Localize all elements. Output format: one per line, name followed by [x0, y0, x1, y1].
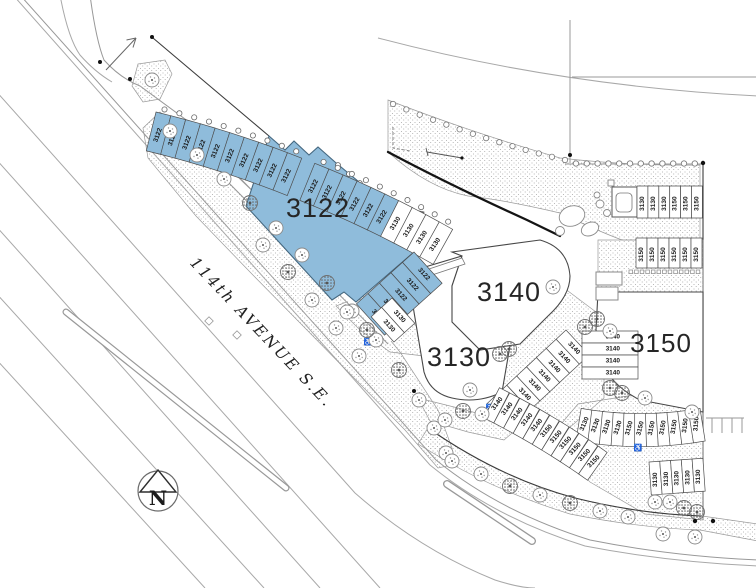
driveway-apron	[233, 331, 241, 339]
stall-label: 3130	[650, 196, 657, 211]
tree-dense-icon	[615, 386, 630, 401]
site-plan: 3122312231223122312231223122312231223122…	[0, 0, 756, 588]
tree-dense-icon	[690, 505, 705, 520]
shrub-icon	[177, 111, 182, 116]
stall-label: 3130	[695, 469, 702, 484]
tree-dense-icon	[243, 196, 258, 211]
shrub-icon	[265, 138, 270, 143]
tree-icon	[190, 148, 204, 162]
tree-dense-icon	[503, 479, 518, 494]
stall-label: 3150	[683, 196, 690, 211]
tree-icon	[533, 488, 547, 502]
north-label: N	[149, 486, 167, 510]
north-arrow-icon: N	[138, 470, 178, 511]
shrub-icon	[279, 143, 284, 148]
hedge-icon	[635, 270, 639, 274]
tree-icon	[474, 467, 488, 481]
hedge-icon	[685, 270, 689, 274]
stall-label: 3150	[660, 247, 667, 262]
junction-line	[60, 0, 112, 82]
tree-icon	[256, 238, 270, 252]
shrub-icon	[162, 107, 167, 112]
shrub-icon	[595, 161, 600, 166]
hedge-icon	[691, 270, 695, 274]
tree-icon	[463, 383, 477, 397]
tree-icon	[412, 393, 426, 407]
shrub-icon	[446, 219, 451, 224]
stall-row-se_row: 31303130313031303130	[649, 458, 705, 495]
entrance-arrow-icon	[106, 38, 136, 70]
tree-icon	[163, 124, 177, 138]
shrub-icon	[236, 128, 241, 133]
shrub-icon	[444, 122, 449, 127]
building-3140-label: 3140	[477, 277, 541, 307]
shrub-icon	[419, 204, 424, 209]
shrub-icon	[497, 140, 502, 145]
stall-label: 3140	[606, 358, 621, 365]
tree-icon	[593, 504, 607, 518]
hedge-icon	[663, 270, 667, 274]
shrub-icon	[335, 165, 340, 170]
tree-icon	[269, 221, 283, 235]
shrub-icon	[404, 107, 409, 112]
stall-label: 3140	[606, 346, 621, 353]
tree-icon	[438, 413, 452, 427]
tree-icon	[145, 73, 159, 87]
road-curve-top-right	[378, 38, 756, 96]
shrub-icon	[573, 161, 578, 166]
tree-icon	[648, 495, 662, 509]
tree-icon	[546, 280, 560, 294]
shrub-icon	[417, 112, 422, 117]
hedge-icon	[674, 270, 678, 274]
building-3130-label: 3130	[427, 342, 491, 372]
shrub-icon	[206, 119, 211, 124]
stall-label: 3150	[638, 247, 645, 262]
stall-label: 3130	[674, 471, 681, 486]
shrub-icon	[627, 161, 632, 166]
tree-icon	[685, 405, 699, 419]
stall-label: 3150	[671, 247, 678, 262]
site-plan-svg: 3122312231223122312231223122312231223122…	[0, 0, 756, 588]
shrub-icon	[432, 212, 437, 217]
tree-dense-icon	[281, 265, 296, 280]
shrub-icon	[649, 161, 654, 166]
stall-label: 3140	[606, 370, 621, 377]
tree-icon	[445, 454, 459, 468]
stall-label: 3130	[639, 196, 646, 211]
utility-box	[608, 180, 614, 186]
stall-label: 3130	[652, 472, 659, 487]
building-3150-label: 3150	[630, 328, 692, 358]
shrub-icon	[660, 161, 665, 166]
tree-icon	[217, 172, 231, 186]
tree-icon	[475, 407, 489, 421]
tree-icon	[688, 530, 702, 544]
stall-label: 3150	[682, 247, 689, 262]
tree-icon	[656, 527, 670, 541]
shrub-icon	[470, 131, 475, 136]
shrub-icon	[617, 161, 622, 166]
shrub-icon	[377, 184, 382, 189]
hedge-icon	[668, 270, 672, 274]
shrub-icon	[294, 149, 299, 154]
shrub-icon	[192, 115, 197, 120]
shrub-icon	[390, 101, 395, 106]
tree-icon	[638, 391, 652, 405]
east-parking-ticks	[706, 418, 744, 433]
stall-row-ne_lower: 315031503150315031503150	[636, 238, 702, 268]
hedge-icon	[629, 270, 633, 274]
stall-label: 3130	[684, 470, 691, 485]
shrub-icon	[692, 161, 697, 166]
shrub-icon	[638, 161, 643, 166]
driveway-apron	[205, 317, 213, 325]
shrub-icon	[671, 161, 676, 166]
shrub-icon	[606, 161, 611, 166]
hedge-icon	[640, 270, 644, 274]
shrub-icon	[483, 135, 488, 140]
tree-icon	[295, 248, 309, 262]
shrub-icon	[430, 117, 435, 122]
tree-dense-icon	[502, 342, 517, 357]
stall-label: 3130	[661, 196, 668, 211]
tree-dense-icon	[320, 276, 335, 291]
hedge-icon	[646, 270, 650, 274]
stall-label: 3150	[649, 247, 656, 262]
shrub-icon	[321, 159, 326, 164]
hedge-icon	[696, 270, 700, 274]
tree-dense-icon	[392, 363, 407, 378]
utility-pad	[596, 287, 618, 300]
shrub-icon	[681, 161, 686, 166]
stall-label: 3150	[693, 247, 700, 262]
hedge-icon	[679, 270, 683, 274]
trash-enclosure-inner	[616, 193, 632, 212]
tree-dense-icon	[578, 320, 593, 335]
shrub-icon	[523, 147, 528, 152]
shrub-icon	[391, 191, 396, 196]
shrub-icon	[363, 178, 368, 183]
stall-label: 3130	[663, 471, 670, 486]
tree-dense-icon	[456, 404, 471, 419]
shrub-icon	[221, 123, 226, 128]
accessible-stall-icon: ♿	[634, 443, 643, 452]
shrub-icon	[584, 161, 589, 166]
shrub-icon	[536, 151, 541, 156]
tree-icon	[340, 305, 354, 319]
hedge-icon	[651, 270, 655, 274]
shrub-icon	[457, 127, 462, 132]
shrub-icon	[562, 157, 567, 162]
tree-icon	[663, 495, 677, 509]
dimension-point	[460, 156, 463, 159]
stall-label: 3150	[693, 196, 700, 211]
shrub-icon	[349, 171, 354, 176]
tree-icon	[603, 324, 617, 338]
shrub-icon	[405, 197, 410, 202]
stall-row-ne_upper: 313031303130315031503150	[637, 186, 702, 218]
road-lane-line	[0, 358, 205, 588]
utility-pad	[596, 272, 622, 285]
stall-label: 3150	[672, 196, 679, 211]
tree-icon	[305, 293, 319, 307]
tree-icon	[329, 321, 343, 335]
shrub-icon	[250, 133, 255, 138]
building-3122-label: 3122	[286, 193, 350, 223]
tree-icon	[352, 349, 366, 363]
tree-dense-icon	[360, 323, 375, 338]
hedge-icon	[657, 270, 661, 274]
tree-icon	[621, 510, 635, 524]
road-median-island-inner	[66, 312, 286, 488]
shrub-icon	[549, 154, 554, 159]
tree-dense-icon	[563, 496, 578, 511]
shrub-icon	[510, 143, 515, 148]
